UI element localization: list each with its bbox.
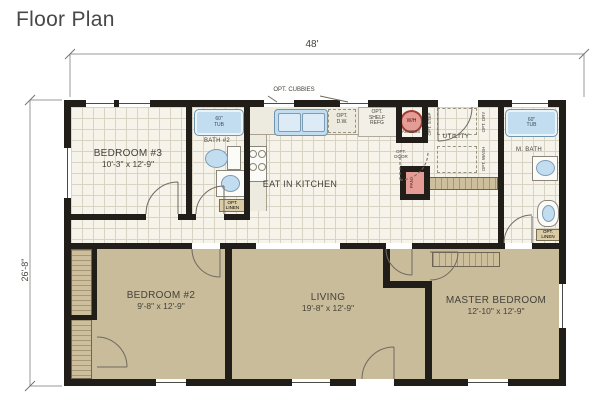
dimension-line-left <box>30 100 62 386</box>
window <box>559 284 566 328</box>
range-burner-icon <box>249 163 257 171</box>
dimension-width: 48' <box>296 39 328 51</box>
bath2-linen: OPT.LINEN <box>219 199 246 212</box>
opt-dishwasher-label: OPT.D.W. <box>328 114 356 125</box>
window <box>64 148 71 198</box>
wall <box>92 249 97 315</box>
wall <box>71 315 97 320</box>
wall <box>340 243 386 249</box>
mbath-sink-icon <box>536 160 555 176</box>
bath2-sink-icon <box>221 175 240 192</box>
window <box>468 379 508 386</box>
pantry-label: PAN. <box>410 171 420 195</box>
mbath-toilet-bowl-icon <box>542 205 555 222</box>
dimension-depth: 26'-8" <box>20 245 34 295</box>
wall <box>498 107 504 243</box>
opt-cubbies-label: OPT. CUBBIES <box>262 87 326 94</box>
wall <box>225 249 232 379</box>
room-label-bedroom2: BEDROOM #2 9'-8" x 12'-9" <box>106 290 216 311</box>
wall <box>224 214 244 220</box>
dimension-line-top <box>70 54 584 97</box>
room-label-utility: UTILITY <box>430 133 482 140</box>
mbath-tub: 60"TUB <box>505 109 558 137</box>
window <box>156 379 186 386</box>
window <box>86 100 114 107</box>
kitchen-sink <box>274 109 328 136</box>
rear-door-opening <box>438 100 478 107</box>
wall <box>186 107 192 220</box>
page-title: Floor Plan <box>16 8 115 32</box>
range-burner-icon <box>258 163 266 171</box>
wall <box>64 100 71 386</box>
window <box>512 100 548 107</box>
opt-dryer-space <box>437 108 477 135</box>
wall <box>383 281 432 288</box>
cubby-niche <box>340 100 368 107</box>
wall <box>178 214 186 220</box>
opt-refrigerator-label: OPT.SHELFREFG <box>358 110 396 127</box>
sink-basin <box>278 113 301 132</box>
room-label-mbath: M. BATH <box>500 147 558 154</box>
bath2-toilet-icon <box>205 149 228 168</box>
utility-shelf <box>428 177 498 190</box>
range-burner-icon <box>249 150 257 158</box>
wall <box>71 243 192 249</box>
wall <box>425 281 432 379</box>
wall <box>412 243 505 249</box>
bath2-toilet-tank <box>227 146 241 170</box>
room-label-bedroom3: BEDROOM #3 10'-3" x 12'-9" <box>73 148 183 169</box>
room-label-living: LIVING 19'-8" x 12'-9" <box>273 292 383 313</box>
mbath-linen: OPT.LINEN <box>536 229 560 241</box>
floor-plan-canvas: Floor Plan BAR OPT.D.W. OPT.SHELFREFG 60… <box>0 0 600 412</box>
opt-door-label: OPT.DOOR <box>388 150 414 160</box>
room-label-kitchen: EAT IN KITCHEN <box>252 179 348 189</box>
window <box>119 100 150 107</box>
wall <box>559 100 566 386</box>
wall <box>532 243 559 249</box>
bath2-tub: 60"TUB <box>194 109 244 136</box>
wall <box>192 214 196 220</box>
window <box>292 379 330 386</box>
wall <box>396 137 428 143</box>
front-door-opening <box>356 379 394 386</box>
sink-basin <box>302 113 325 132</box>
bedroom2-closet <box>71 249 92 379</box>
room-label-bath2: BATH #2 <box>190 138 244 145</box>
wall <box>71 214 146 220</box>
range-burner-icon <box>258 150 266 158</box>
master-wardrobe <box>432 252 500 267</box>
opt-dry-label: OPT. DRY <box>482 107 492 137</box>
opt-step-label: OPT. STEP <box>428 108 436 140</box>
wall <box>244 107 250 220</box>
opt-washer-space <box>437 146 477 173</box>
cubby-niche <box>264 100 294 107</box>
opt-wash-label: OPT. WASH <box>482 144 492 174</box>
room-label-master: MASTER BEDROOM 12'-10" x 12'-9" <box>435 295 557 316</box>
